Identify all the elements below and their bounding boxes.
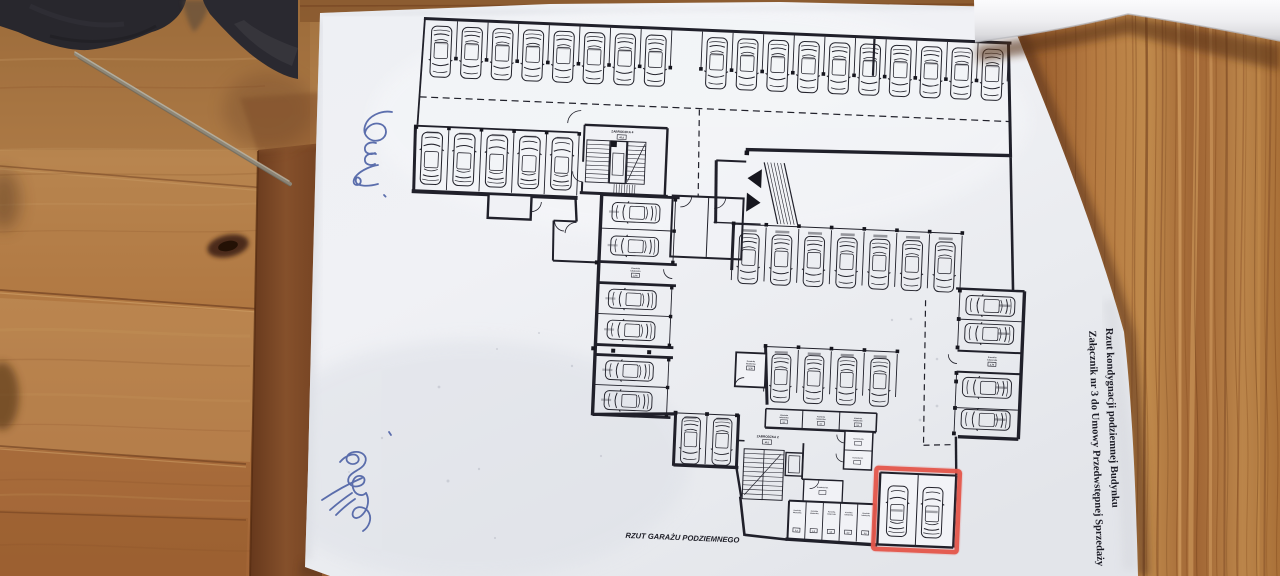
svg-text:lokatorska: lokatorska	[853, 419, 863, 422]
svg-text:lokatorska: lokatorska	[987, 358, 998, 361]
svg-text:lokatorska: lokatorska	[746, 362, 757, 365]
svg-text:lokatorska: lokatorska	[779, 416, 789, 419]
svg-text:lokatorska: lokatorska	[844, 513, 853, 516]
svg-text:lokatorska: lokatorska	[793, 511, 802, 514]
svg-text:lokatorska: lokatorska	[816, 418, 826, 421]
svg-text:3,1: 3,1	[856, 425, 859, 427]
svg-text:3,1: 3,1	[819, 423, 822, 425]
svg-text:lokatorska: lokatorska	[827, 512, 836, 515]
svg-text:3,1: 3,1	[782, 422, 785, 424]
svg-text:45,6: 45,6	[619, 136, 624, 139]
svg-text:lokatorska: lokatorska	[630, 269, 641, 272]
svg-text:lokatorska: lokatorska	[862, 514, 871, 517]
svg-text:lokatorska: lokatorska	[810, 512, 819, 515]
